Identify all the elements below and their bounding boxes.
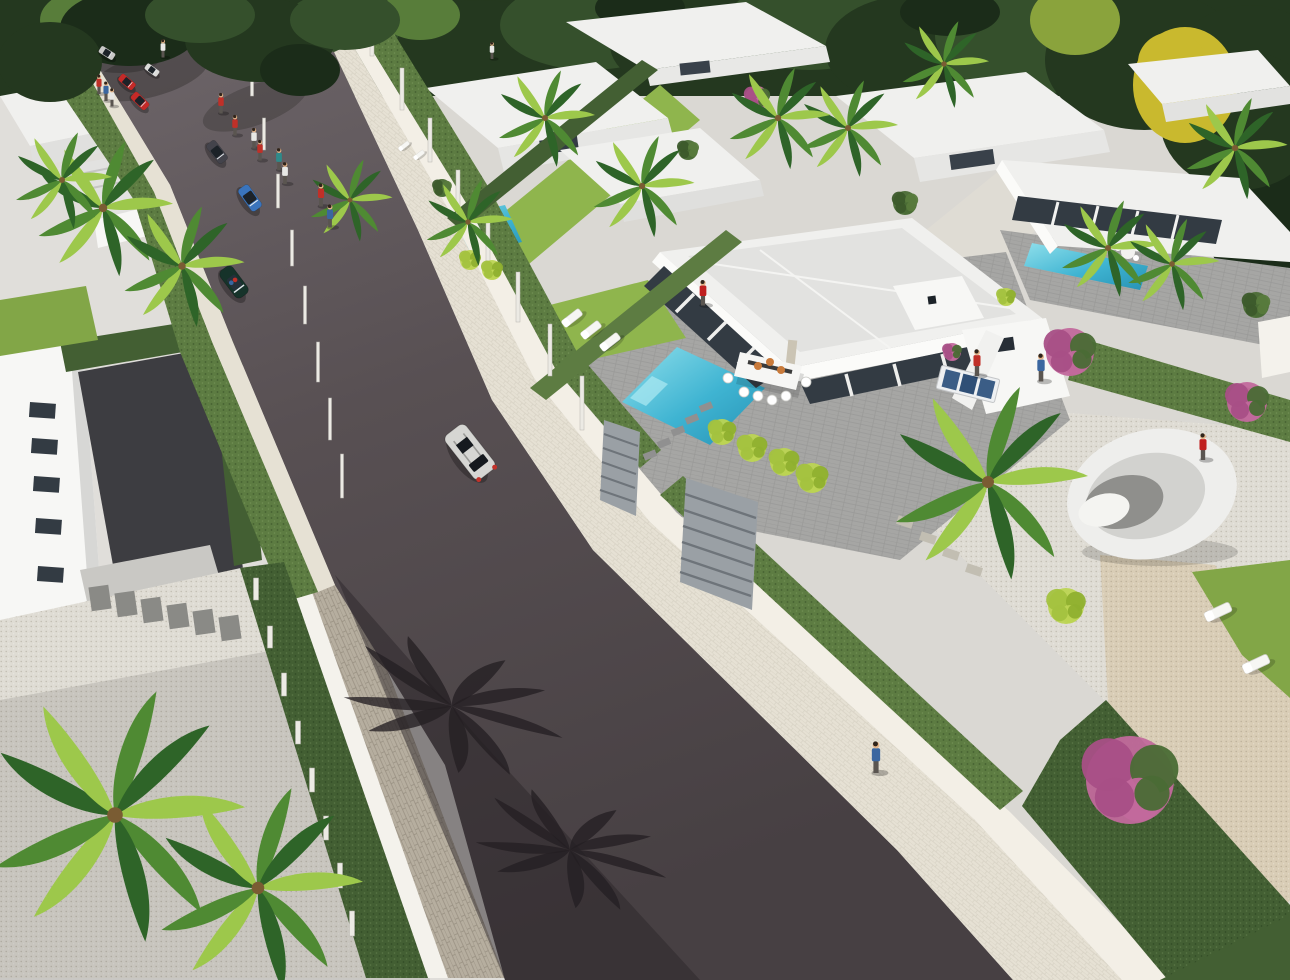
fence-post [350, 911, 355, 936]
aerial-render-canvas [0, 0, 1290, 980]
window [31, 438, 58, 455]
fence-post [282, 673, 287, 696]
fence-post [310, 768, 315, 792]
scene-svg [0, 0, 1290, 980]
stepping-stone [192, 609, 215, 636]
stepping-stone [218, 615, 241, 642]
forest-tree [260, 44, 340, 96]
stepping-stone [140, 597, 163, 624]
stepping-stone [88, 585, 111, 612]
fence-post [428, 118, 432, 162]
fence-post [268, 626, 273, 648]
right-boundary-wall [1258, 316, 1290, 378]
fence-post [263, 118, 266, 150]
fence-post [317, 342, 320, 382]
fence-post [516, 272, 520, 322]
fence-post [254, 578, 259, 600]
fence-post [277, 174, 280, 208]
window [33, 476, 60, 493]
fence-post [291, 230, 294, 266]
window [29, 402, 56, 419]
fence-post [580, 376, 584, 430]
forest-tree [0, 22, 102, 102]
fence-post [329, 398, 332, 440]
fence-post [296, 721, 301, 744]
fence-post [548, 324, 552, 376]
fence-post [341, 454, 344, 498]
stepping-stone [166, 603, 189, 630]
window [37, 566, 64, 583]
fence-post [400, 68, 404, 110]
stepping-stone [114, 591, 137, 618]
center-villa-roof-vent [927, 295, 936, 304]
window [35, 518, 62, 535]
fence-post [304, 286, 307, 324]
gate-small [600, 420, 640, 516]
